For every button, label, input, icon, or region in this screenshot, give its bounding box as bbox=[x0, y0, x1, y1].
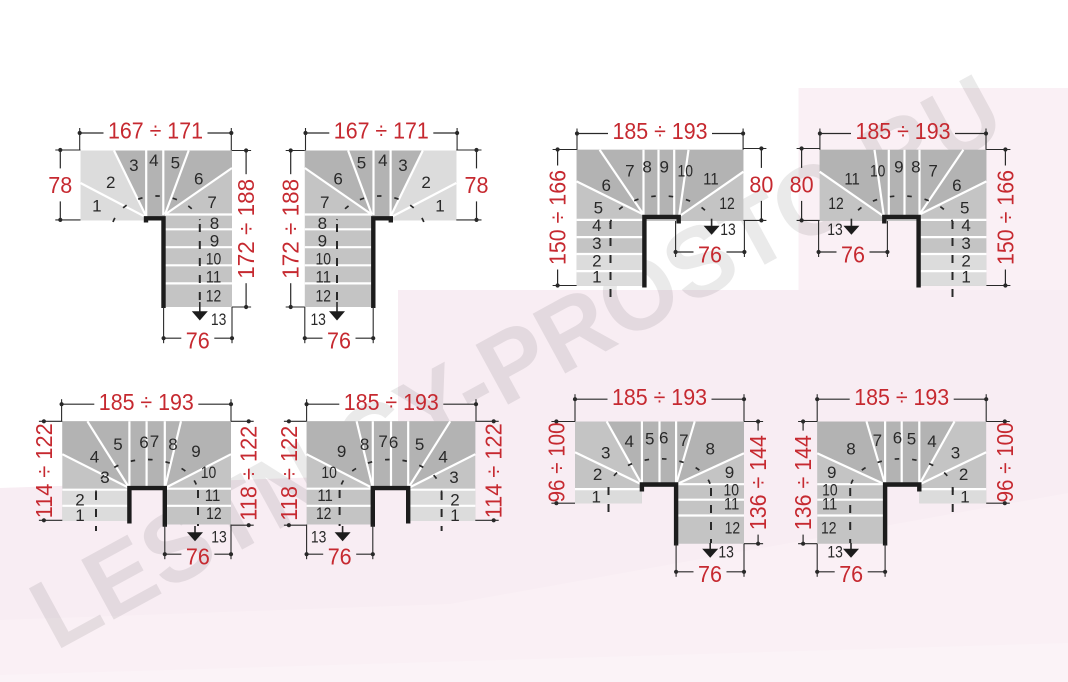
svg-text:185 ÷ 193: 185 ÷ 193 bbox=[856, 118, 951, 144]
svg-text:3: 3 bbox=[449, 468, 458, 487]
svg-text:5: 5 bbox=[415, 435, 424, 454]
svg-text:2: 2 bbox=[593, 465, 602, 484]
svg-text:9: 9 bbox=[725, 463, 734, 482]
svg-text:76: 76 bbox=[186, 328, 210, 354]
svg-text:5: 5 bbox=[960, 199, 969, 218]
svg-text:6: 6 bbox=[333, 170, 342, 189]
svg-text:4: 4 bbox=[961, 216, 970, 235]
svg-text:3: 3 bbox=[398, 156, 407, 175]
svg-text:8: 8 bbox=[642, 158, 651, 177]
svg-text:4: 4 bbox=[438, 448, 447, 467]
svg-text:12: 12 bbox=[206, 287, 222, 306]
svg-text:11: 11 bbox=[206, 268, 222, 287]
svg-text:6: 6 bbox=[601, 176, 610, 195]
svg-text:185 ÷ 193: 185 ÷ 193 bbox=[854, 384, 949, 410]
svg-text:8: 8 bbox=[911, 158, 920, 177]
svg-text:12: 12 bbox=[206, 504, 222, 523]
svg-text:8: 8 bbox=[168, 435, 177, 454]
svg-text:172 ÷ 188: 172 ÷ 188 bbox=[278, 179, 304, 279]
svg-text:76: 76 bbox=[841, 241, 865, 267]
svg-text:5: 5 bbox=[645, 430, 654, 449]
svg-text:10: 10 bbox=[678, 161, 694, 180]
svg-text:3: 3 bbox=[951, 443, 960, 462]
svg-text:7: 7 bbox=[207, 193, 216, 212]
svg-text:167 ÷ 171: 167 ÷ 171 bbox=[334, 118, 429, 144]
svg-text:13: 13 bbox=[827, 543, 843, 562]
svg-text:4: 4 bbox=[927, 432, 936, 451]
svg-text:4: 4 bbox=[90, 448, 99, 467]
svg-text:6: 6 bbox=[389, 433, 398, 452]
svg-text:11: 11 bbox=[205, 486, 221, 505]
svg-text:114 ÷ 122: 114 ÷ 122 bbox=[481, 423, 507, 518]
svg-text:8: 8 bbox=[318, 214, 327, 233]
svg-text:3: 3 bbox=[592, 234, 601, 253]
svg-text:11: 11 bbox=[316, 268, 332, 287]
svg-text:10: 10 bbox=[316, 250, 332, 269]
svg-text:5: 5 bbox=[594, 199, 603, 218]
svg-text:11: 11 bbox=[724, 494, 740, 513]
svg-text:12: 12 bbox=[316, 287, 332, 306]
svg-text:8: 8 bbox=[360, 435, 369, 454]
svg-text:118 ÷ 122: 118 ÷ 122 bbox=[236, 426, 262, 521]
svg-text:3: 3 bbox=[100, 468, 109, 487]
svg-text:12: 12 bbox=[821, 518, 837, 537]
svg-text:12: 12 bbox=[719, 194, 735, 213]
svg-text:172 ÷ 188: 172 ÷ 188 bbox=[233, 179, 259, 279]
svg-text:76: 76 bbox=[698, 241, 722, 267]
svg-text:13: 13 bbox=[310, 310, 326, 329]
svg-text:96 ÷ 100: 96 ÷ 100 bbox=[992, 422, 1018, 502]
svg-text:2: 2 bbox=[450, 491, 459, 510]
svg-text:9: 9 bbox=[827, 463, 836, 482]
svg-text:1: 1 bbox=[92, 197, 101, 216]
svg-text:13: 13 bbox=[718, 543, 734, 562]
svg-text:2: 2 bbox=[592, 251, 601, 270]
svg-text:6: 6 bbox=[139, 433, 148, 452]
svg-text:76: 76 bbox=[839, 561, 863, 587]
svg-text:10: 10 bbox=[206, 250, 222, 269]
svg-text:185 ÷ 193: 185 ÷ 193 bbox=[99, 389, 194, 415]
svg-text:9: 9 bbox=[318, 232, 327, 251]
svg-text:2: 2 bbox=[961, 251, 970, 270]
svg-text:76: 76 bbox=[698, 561, 722, 587]
svg-text:11: 11 bbox=[703, 169, 719, 188]
svg-text:9: 9 bbox=[191, 442, 200, 461]
svg-text:6: 6 bbox=[194, 170, 203, 189]
svg-text:7: 7 bbox=[378, 432, 387, 451]
svg-text:5: 5 bbox=[907, 430, 916, 449]
svg-text:9: 9 bbox=[337, 442, 346, 461]
svg-text:185 ÷ 193: 185 ÷ 193 bbox=[344, 389, 439, 415]
svg-text:12: 12 bbox=[316, 504, 332, 523]
svg-text:78: 78 bbox=[48, 172, 72, 198]
svg-text:4: 4 bbox=[149, 151, 158, 170]
svg-text:4: 4 bbox=[378, 151, 387, 170]
svg-text:7: 7 bbox=[928, 162, 937, 181]
svg-text:1: 1 bbox=[592, 268, 601, 287]
svg-text:11: 11 bbox=[844, 169, 860, 188]
svg-text:11: 11 bbox=[317, 486, 333, 505]
svg-text:185 ÷ 193: 185 ÷ 193 bbox=[612, 384, 707, 410]
svg-text:2: 2 bbox=[959, 465, 968, 484]
svg-text:8: 8 bbox=[846, 440, 855, 459]
svg-text:5: 5 bbox=[357, 154, 366, 173]
svg-text:3: 3 bbox=[961, 234, 970, 253]
svg-text:12: 12 bbox=[828, 194, 844, 213]
svg-text:2: 2 bbox=[421, 173, 430, 192]
svg-text:7: 7 bbox=[873, 431, 882, 450]
svg-text:3: 3 bbox=[601, 443, 610, 462]
svg-text:3: 3 bbox=[129, 156, 138, 175]
svg-text:8: 8 bbox=[705, 440, 714, 459]
svg-text:13: 13 bbox=[311, 528, 327, 547]
svg-text:9: 9 bbox=[894, 158, 903, 177]
svg-text:13: 13 bbox=[720, 220, 736, 239]
svg-text:1: 1 bbox=[591, 487, 600, 506]
svg-text:5: 5 bbox=[171, 154, 180, 173]
svg-text:136 ÷ 144: 136 ÷ 144 bbox=[790, 435, 816, 530]
svg-text:1: 1 bbox=[960, 487, 969, 506]
svg-text:6: 6 bbox=[893, 429, 902, 448]
svg-text:2: 2 bbox=[75, 491, 84, 510]
svg-text:12: 12 bbox=[725, 518, 741, 537]
svg-text:76: 76 bbox=[327, 328, 351, 354]
svg-text:185 ÷ 193: 185 ÷ 193 bbox=[613, 118, 708, 144]
svg-text:7: 7 bbox=[150, 432, 159, 451]
svg-text:8: 8 bbox=[210, 214, 219, 233]
svg-text:76: 76 bbox=[186, 544, 210, 570]
svg-text:80: 80 bbox=[790, 171, 814, 197]
svg-text:11: 11 bbox=[822, 494, 838, 513]
svg-text:10: 10 bbox=[870, 161, 886, 180]
svg-text:7: 7 bbox=[625, 162, 634, 181]
svg-text:13: 13 bbox=[211, 528, 227, 547]
svg-text:1: 1 bbox=[961, 268, 970, 287]
svg-text:5: 5 bbox=[113, 435, 122, 454]
svg-text:150 ÷ 166: 150 ÷ 166 bbox=[992, 170, 1018, 265]
svg-text:6: 6 bbox=[952, 176, 961, 195]
svg-text:10: 10 bbox=[321, 463, 337, 482]
svg-text:114 ÷ 122: 114 ÷ 122 bbox=[31, 423, 57, 518]
svg-text:118 ÷ 122: 118 ÷ 122 bbox=[276, 426, 302, 521]
svg-text:150 ÷ 166: 150 ÷ 166 bbox=[545, 170, 571, 265]
svg-text:78: 78 bbox=[465, 172, 489, 198]
svg-text:7: 7 bbox=[679, 431, 688, 450]
svg-text:9: 9 bbox=[659, 158, 668, 177]
svg-text:13: 13 bbox=[827, 220, 843, 239]
svg-text:10: 10 bbox=[201, 463, 217, 482]
svg-text:1: 1 bbox=[435, 197, 444, 216]
svg-text:4: 4 bbox=[592, 216, 601, 235]
svg-text:6: 6 bbox=[659, 429, 668, 448]
svg-text:4: 4 bbox=[624, 432, 633, 451]
svg-text:9: 9 bbox=[210, 232, 219, 251]
svg-text:80: 80 bbox=[749, 171, 773, 197]
svg-text:76: 76 bbox=[328, 544, 352, 570]
svg-text:96 ÷ 100: 96 ÷ 100 bbox=[543, 422, 569, 502]
svg-text:167 ÷ 171: 167 ÷ 171 bbox=[108, 118, 203, 144]
svg-text:13: 13 bbox=[211, 310, 227, 329]
svg-text:7: 7 bbox=[320, 193, 329, 212]
svg-text:2: 2 bbox=[106, 173, 115, 192]
svg-text:136 ÷ 144: 136 ÷ 144 bbox=[745, 435, 771, 530]
